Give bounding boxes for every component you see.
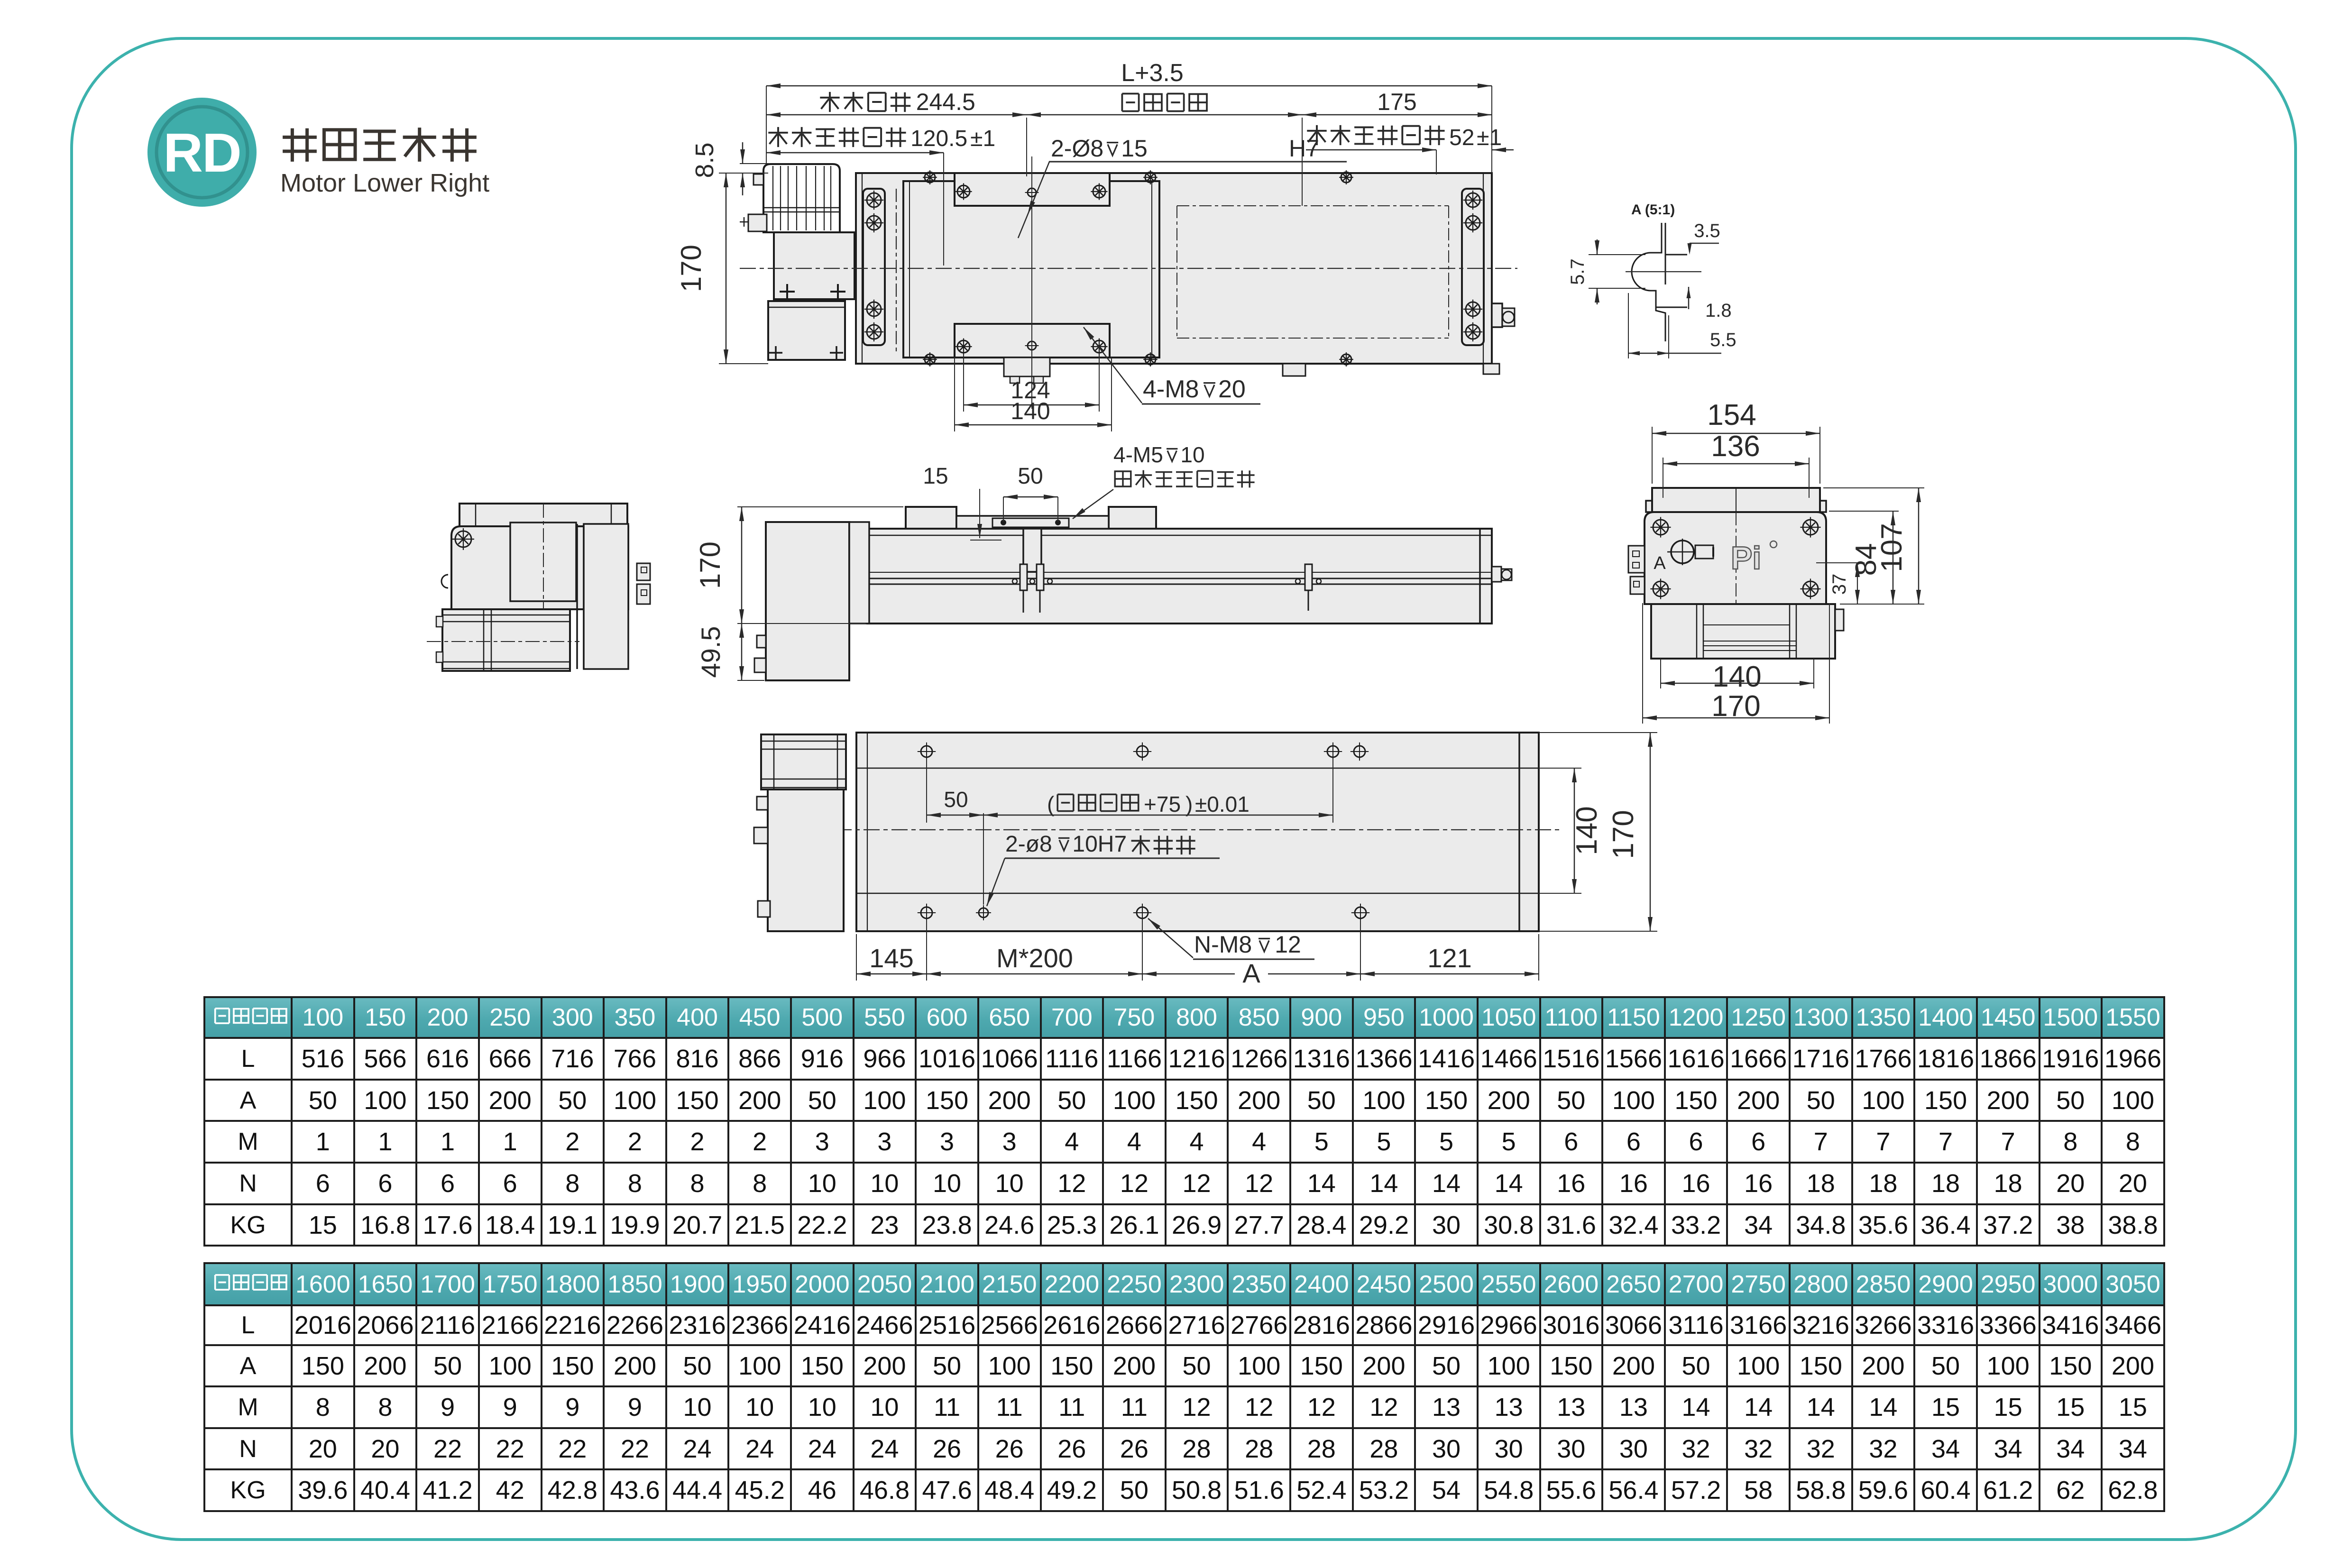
svg-text:RD: RD bbox=[163, 122, 241, 183]
svg-text:5.5: 5.5 bbox=[1710, 330, 1736, 350]
svg-text:Pi: Pi bbox=[1731, 540, 1761, 576]
svg-text:10H7: 10H7 bbox=[1072, 832, 1127, 857]
svg-text:H7: H7 bbox=[1289, 135, 1319, 162]
svg-text:170: 170 bbox=[675, 245, 707, 292]
svg-text:10: 10 bbox=[1180, 442, 1204, 467]
svg-text:±1: ±1 bbox=[1477, 125, 1502, 150]
svg-text:4-M8: 4-M8 bbox=[1143, 376, 1199, 403]
svg-text:±1: ±1 bbox=[970, 126, 995, 151]
svg-text:L+3.5: L+3.5 bbox=[1121, 59, 1184, 87]
svg-text:20: 20 bbox=[1218, 376, 1246, 403]
svg-text:(: ( bbox=[1047, 792, 1055, 816]
svg-text:Motor Lower Right: Motor Lower Right bbox=[280, 169, 489, 197]
svg-text:5.7: 5.7 bbox=[1567, 258, 1588, 285]
svg-text:107: 107 bbox=[1875, 523, 1908, 572]
svg-text:120.5: 120.5 bbox=[910, 126, 967, 151]
svg-text:145: 145 bbox=[869, 943, 913, 973]
svg-text:50: 50 bbox=[1018, 464, 1043, 489]
svg-text:15: 15 bbox=[923, 464, 948, 489]
svg-text:8.5: 8.5 bbox=[690, 142, 719, 178]
svg-text:2-ø8: 2-ø8 bbox=[1005, 832, 1052, 857]
svg-text:49.5: 49.5 bbox=[696, 626, 726, 678]
svg-text:12: 12 bbox=[1275, 931, 1301, 958]
svg-text:50: 50 bbox=[944, 787, 968, 812]
svg-text:A: A bbox=[1654, 553, 1666, 573]
svg-text:): ) bbox=[1185, 792, 1193, 816]
svg-text:170: 170 bbox=[1607, 810, 1640, 859]
svg-text:170: 170 bbox=[1711, 690, 1760, 723]
svg-text:±0.01: ±0.01 bbox=[1195, 792, 1249, 816]
svg-text:140: 140 bbox=[1571, 806, 1603, 855]
svg-text:121: 121 bbox=[1427, 943, 1471, 973]
svg-text:52: 52 bbox=[1449, 125, 1474, 150]
svg-text:15: 15 bbox=[1121, 135, 1148, 162]
svg-text:136: 136 bbox=[1711, 430, 1760, 463]
svg-text:3.5: 3.5 bbox=[1694, 220, 1720, 241]
svg-text:170: 170 bbox=[694, 541, 726, 589]
svg-text:M*200: M*200 bbox=[996, 943, 1073, 973]
svg-text:A (5:1): A (5:1) bbox=[1631, 202, 1675, 218]
svg-text:N-M8: N-M8 bbox=[1194, 931, 1252, 958]
svg-text:175: 175 bbox=[1377, 89, 1416, 115]
svg-text:140: 140 bbox=[1011, 398, 1050, 424]
svg-text:+75: +75 bbox=[1144, 792, 1181, 816]
svg-text:37: 37 bbox=[1829, 574, 1850, 595]
svg-text:2-Ø8: 2-Ø8 bbox=[1051, 135, 1103, 162]
svg-text:140: 140 bbox=[1712, 660, 1761, 693]
svg-text:154: 154 bbox=[1707, 399, 1756, 431]
svg-text:244.5: 244.5 bbox=[916, 89, 975, 115]
svg-text:4-M5: 4-M5 bbox=[1113, 442, 1163, 467]
svg-text:A: A bbox=[1242, 958, 1260, 988]
svg-text:1.8: 1.8 bbox=[1705, 300, 1732, 321]
